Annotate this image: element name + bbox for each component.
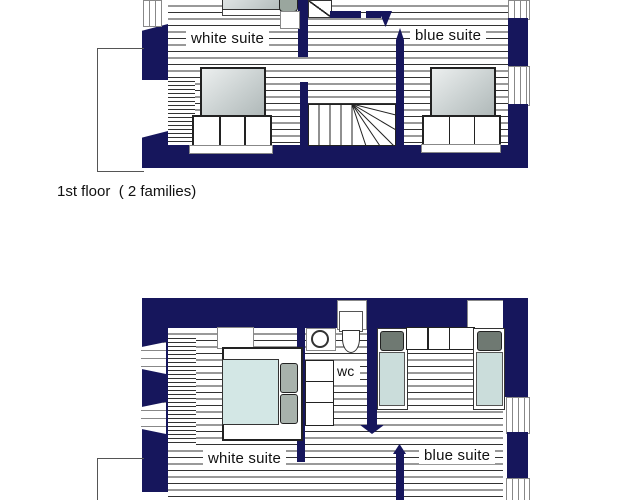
white-suite-window-sill	[189, 145, 273, 154]
right-wall-lower	[508, 104, 528, 168]
blue-suite-label-lower: blue suite	[419, 447, 495, 464]
toilet-tank	[339, 311, 363, 332]
top-wall-window-right	[467, 300, 505, 330]
left-bay-window-frame	[143, 0, 162, 27]
double-bed-pillow-2	[280, 394, 298, 424]
annex-outline	[97, 48, 144, 172]
sink-icon	[311, 330, 329, 348]
bay-recess-floor-lower	[168, 335, 196, 445]
stair-wall-right	[396, 40, 404, 150]
stair-step-1	[305, 360, 334, 383]
right-window-2	[506, 478, 530, 500]
staircase	[308, 104, 396, 146]
door-swing-icon	[308, 0, 332, 18]
blue-suite-label: blue suite	[410, 27, 486, 44]
bay-recess-floor	[168, 78, 195, 146]
white-suite-bed	[200, 67, 266, 120]
hall-wall	[396, 453, 404, 500]
left-bay-window-2	[141, 402, 166, 434]
white-suite-label-lower: white suite	[203, 450, 286, 467]
single-bed-2-pillow	[477, 331, 502, 351]
stair-step-2	[305, 381, 334, 404]
right-window-1	[506, 397, 530, 434]
right-window-upper	[508, 0, 530, 20]
floor-plan-figure: white suite blue suite 1st floor ( 2 fam…	[0, 0, 636, 500]
left-wall-upper	[142, 24, 168, 80]
wc-label: wc	[332, 363, 360, 380]
dresser	[217, 327, 254, 349]
right-wall-mid	[508, 18, 528, 66]
single-bed-1-mattress	[379, 352, 405, 406]
white-suite-label: white suite	[186, 30, 269, 47]
bedside-cabinet	[280, 11, 300, 29]
right-wall-upper	[503, 298, 528, 397]
blue-suite-window-sill	[421, 144, 501, 153]
double-bed-mattress	[222, 359, 279, 425]
double-bed-pillow-1	[280, 363, 298, 393]
partial-bed-mattress	[222, 0, 281, 10]
white-suite-window-seat	[192, 115, 272, 149]
left-bay-window-1	[141, 342, 166, 374]
left-wall-lower	[142, 131, 168, 168]
right-window-lower	[508, 66, 530, 106]
landing-wall-left	[330, 11, 361, 18]
nightstand-row	[406, 327, 475, 350]
wc-wall-right	[367, 328, 377, 425]
stair-step-3	[305, 402, 334, 426]
single-bed-2-mattress	[476, 352, 503, 406]
blue-suite-bed	[430, 67, 496, 120]
landing-wall-right	[366, 11, 381, 18]
single-bed-1-pillow	[380, 331, 404, 351]
lower-floor-floorboards	[168, 328, 503, 500]
stair-wall-left	[300, 82, 308, 150]
floor-caption: 1st floor ( 2 families)	[57, 183, 196, 200]
annex-outline-lower	[97, 458, 144, 500]
right-wall-block	[507, 432, 528, 478]
